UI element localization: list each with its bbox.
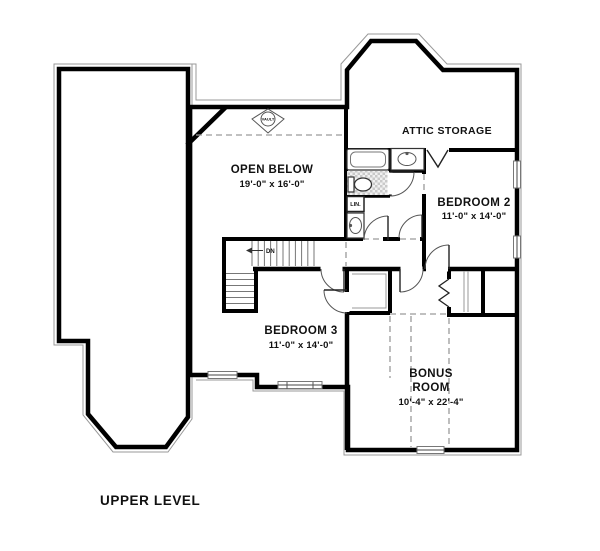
door-opening-tubroom xyxy=(388,173,393,195)
toilet-bowl xyxy=(355,178,372,191)
faucet-2 xyxy=(349,224,352,227)
door-opening-closet3 xyxy=(345,292,350,312)
bedroom3-dims: 11'-0" x 14'-0" xyxy=(269,340,334,351)
bedroom2-label: BEDROOM 2 xyxy=(437,197,510,209)
door-opening-attic xyxy=(426,148,449,153)
floor-plan-svg: DN VAULT LIN. xyxy=(0,0,600,551)
linen-label: LIN. xyxy=(350,202,361,208)
level-title: UPPER LEVEL xyxy=(100,493,200,508)
vault-label: VAULT xyxy=(262,117,275,122)
background xyxy=(0,0,600,551)
bonus-room-label-2: ROOM xyxy=(412,382,449,394)
bonus-room-label-1: BONUS xyxy=(409,368,453,380)
vanity-counter-1 xyxy=(391,149,424,171)
stairs-dn-label: DN xyxy=(266,249,275,255)
door-opening-bedroom3 xyxy=(321,267,343,272)
door-opening-bedroom2 xyxy=(426,267,448,272)
open-below-label: OPEN BELOW xyxy=(231,164,314,176)
toilet-tank xyxy=(348,177,354,192)
bonus-room-dims: 10'-4" x 22'-4" xyxy=(398,397,463,408)
attic-storage-label: ATTIC STORAGE xyxy=(402,125,492,137)
bedroom3-label: BEDROOM 3 xyxy=(264,325,337,337)
floor-plan-page: DN VAULT LIN. xyxy=(0,0,600,551)
faucet-1 xyxy=(405,152,408,155)
open-below-dims: 19'-0" x 16'-0" xyxy=(239,179,304,190)
door-opening-bonus xyxy=(401,267,423,272)
bedroom2-dims: 11'-0" x 14'-0" xyxy=(442,211,507,222)
